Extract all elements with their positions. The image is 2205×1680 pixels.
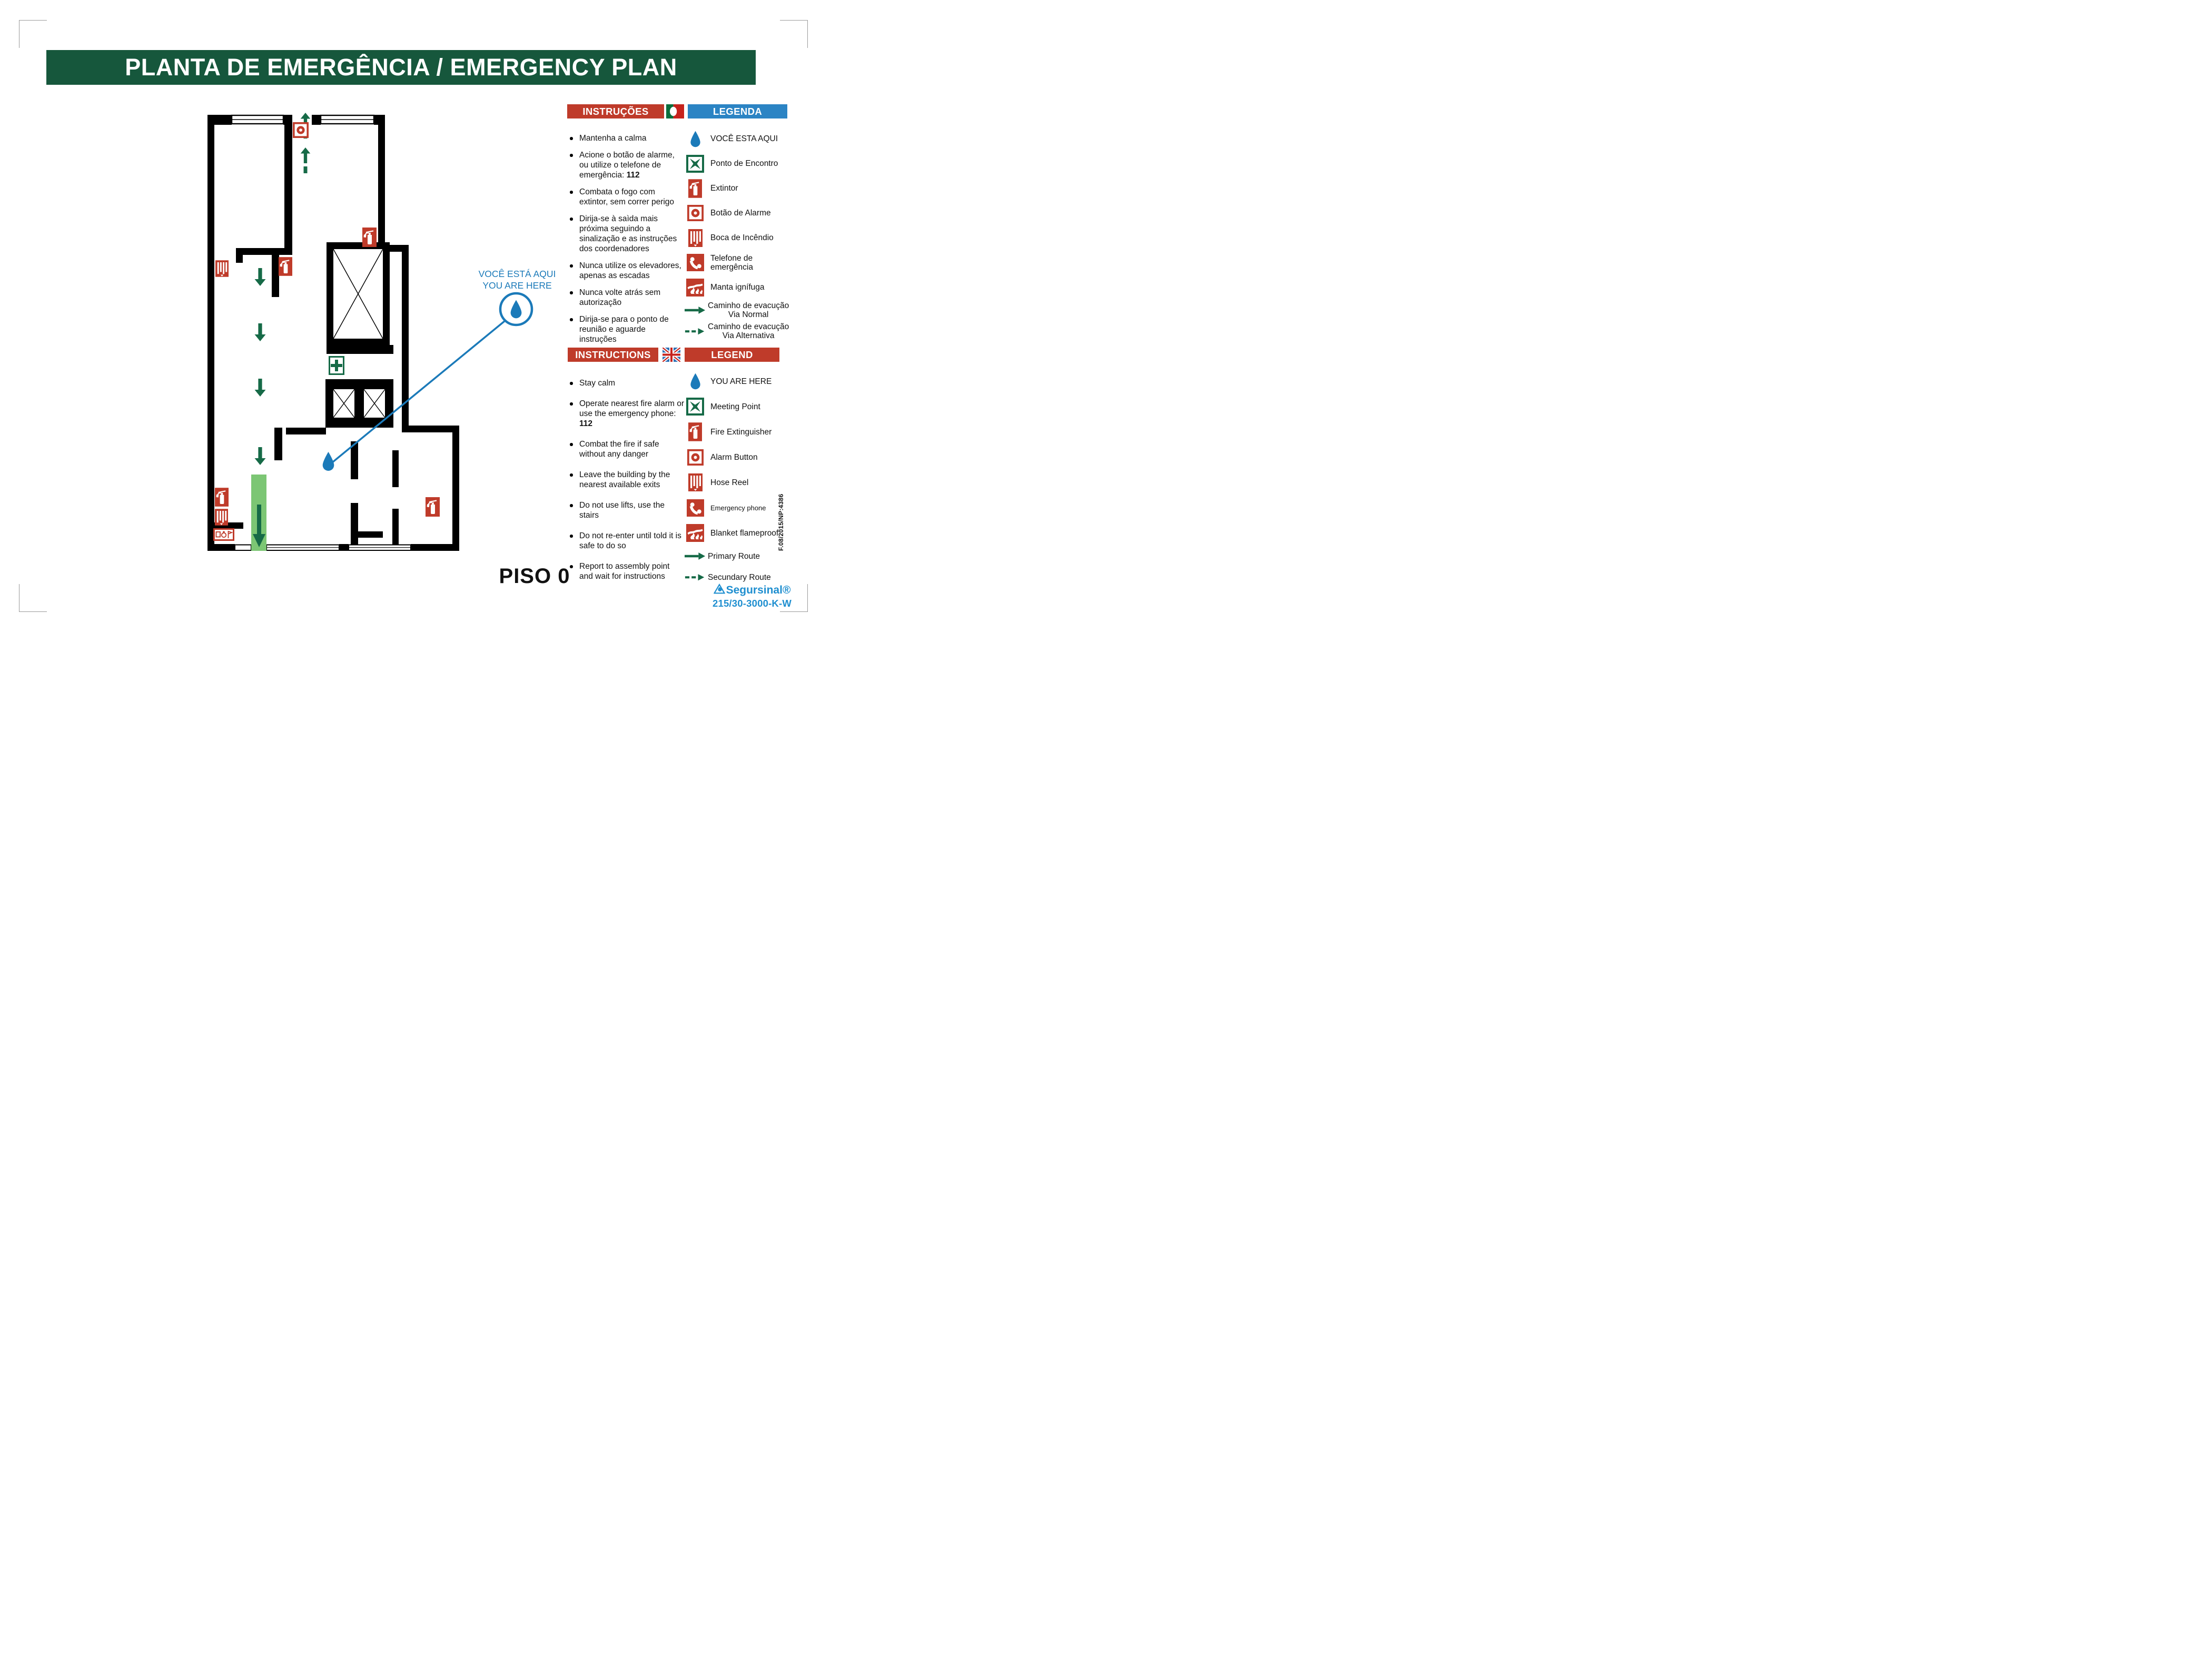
- list-item: Do not use lifts, use the stairs: [568, 500, 685, 520]
- uk-flag-icon: [663, 348, 680, 362]
- evacuation-route-arrows: [255, 113, 311, 465]
- hose-reel-icon: [215, 260, 229, 276]
- list-item: Combata o fogo com extintor, sem correr …: [568, 187, 683, 207]
- legend-item: Telefone de emergência: [685, 250, 793, 275]
- segursinal-flame-icon: [714, 584, 725, 597]
- list-item: Nunca utilize os elevadores, apenas as e…: [568, 261, 683, 281]
- lift-icon: [363, 389, 386, 419]
- page-title: PLANTA DE EMERGÊNCIA / EMERGENCY PLAN: [46, 50, 756, 85]
- pt-instructions-list: Mantenha a calma Acione o botão de alarm…: [568, 133, 683, 351]
- first-aid-icon: [330, 357, 344, 374]
- fire-extinguisher-icon: [685, 179, 706, 198]
- list-item: Report to assembly point and wait for in…: [568, 561, 685, 581]
- crop-mark: [780, 20, 808, 48]
- floor-plan: [204, 108, 462, 556]
- en-instructions-list: Stay calm Operate nearest fire alarm or …: [568, 378, 685, 592]
- route-secondary-arrow-icon: [685, 327, 706, 335]
- list-item: Stay calm: [568, 378, 685, 388]
- route-primary-arrow-icon: [685, 552, 706, 560]
- route-down-arrow-icon: [255, 447, 266, 465]
- emergency-phone-icon: [685, 499, 706, 517]
- lift-icon: [333, 389, 355, 419]
- emergency-plan-poster: PLANTA DE EMERGÊNCIA / EMERGENCY PLAN: [0, 0, 827, 630]
- safety-signage-panel-icon: [214, 529, 234, 540]
- route-secondary-arrow-icon: [685, 573, 706, 581]
- meeting-point-icon: [685, 398, 706, 416]
- fire-blanket-icon: [685, 524, 706, 542]
- pt-legend: VOCÊ ESTA AQUI Ponto de Encontro Extinto…: [685, 126, 793, 342]
- fire-blanket-icon: [685, 279, 706, 297]
- emergency-phone-icon: [685, 254, 706, 271]
- list-item: Do not re-enter until told it is safe to…: [568, 531, 685, 551]
- list-item: Dirija-se para o ponto de reunião e agua…: [568, 314, 683, 344]
- you-are-here-drop-icon: [685, 131, 706, 147]
- legend-item: Fire Extinguisher: [685, 419, 793, 444]
- list-item: Combat the fire if safe without any dang…: [568, 439, 685, 459]
- fire-extinguisher-icon: [426, 497, 440, 517]
- en-instructions-header: INSTRUCTIONS: [568, 348, 658, 362]
- route-down-arrow-icon: [255, 268, 266, 286]
- legend-item: YOU ARE HERE: [685, 369, 793, 394]
- document-reference: F.08/2015/NP:4386: [777, 489, 785, 551]
- floor-plan-drawing: [204, 108, 462, 556]
- list-item: Acione o botão de alarme, ou utilize o t…: [568, 150, 683, 180]
- brand-block: Segursinal® 215/30-3000-K-W: [712, 584, 792, 609]
- meeting-point-icon: [685, 155, 706, 173]
- route-down-arrow-icon: [255, 379, 266, 397]
- legend-item: Caminho de evacução Via Normal: [685, 300, 793, 321]
- list-item: Operate nearest fire alarm or use the em…: [568, 399, 685, 429]
- legend-item: Meeting Point: [685, 394, 793, 419]
- you-are-here-marker: [323, 452, 334, 471]
- legend-item: Extintor: [685, 176, 793, 201]
- pt-instructions-header: INSTRUÇÕES: [567, 104, 664, 118]
- legend-item: Manta ignífuga: [685, 275, 793, 300]
- route-up-arrow-icon: [301, 147, 311, 163]
- you-are-here-drop-icon: [685, 373, 706, 390]
- lift-shafts: [325, 379, 393, 428]
- brand-name: Segursinal®: [726, 584, 791, 597]
- product-code: 215/30-3000-K-W: [712, 598, 792, 609]
- fire-extinguisher-icon: [362, 228, 377, 247]
- stairwell: [327, 242, 390, 345]
- legend-item: Hose Reel: [685, 470, 793, 495]
- fire-extinguisher-icon: [685, 422, 706, 441]
- exit-path-band: [251, 475, 266, 551]
- hose-reel-icon: [685, 229, 706, 247]
- list-item: Mantenha a calma: [568, 133, 683, 143]
- legend-item: Botão de Alarme: [685, 201, 793, 225]
- legend-item: VOCÊ ESTA AQUI: [685, 126, 793, 151]
- callout-drop-icon: [511, 300, 522, 319]
- fire-extinguisher-icon: [215, 488, 229, 507]
- fire-extinguisher-icon: [279, 257, 292, 276]
- legend-item: Primary Route: [685, 546, 793, 567]
- legend-item: Ponto de Encontro: [685, 151, 793, 176]
- portugal-flag-icon: [666, 104, 684, 118]
- legend-item: Blanket flameproof: [685, 520, 793, 546]
- route-primary-arrow-icon: [685, 306, 706, 314]
- hose-reel-icon: [685, 473, 706, 491]
- legend-item: Boca de Incêndio: [685, 225, 793, 250]
- alarm-button-icon: [294, 123, 308, 137]
- crop-mark: [19, 584, 47, 612]
- alarm-button-icon: [685, 205, 706, 221]
- list-item: Leave the building by the nearest availa…: [568, 470, 685, 490]
- hose-reel-icon: [215, 509, 228, 525]
- en-legend-header: LEGEND: [685, 348, 779, 362]
- legend-item: Caminho de evacução Via Alternativa: [685, 321, 793, 342]
- crop-mark: [19, 20, 47, 48]
- en-legend: YOU ARE HERE Meeting Point Fire Extingui…: [685, 369, 793, 588]
- legend-item: Alarm Button: [685, 444, 793, 470]
- list-item: Dirija-se à saìda mais próxima seguindo …: [568, 214, 683, 254]
- legend-item: Emergency phone: [685, 495, 793, 520]
- route-down-arrow-icon: [255, 323, 266, 341]
- alarm-button-icon: [685, 449, 706, 466]
- pt-legend-header: LEGENDA: [688, 104, 787, 118]
- list-item: Nunca volte atrás sem autorização: [568, 288, 683, 308]
